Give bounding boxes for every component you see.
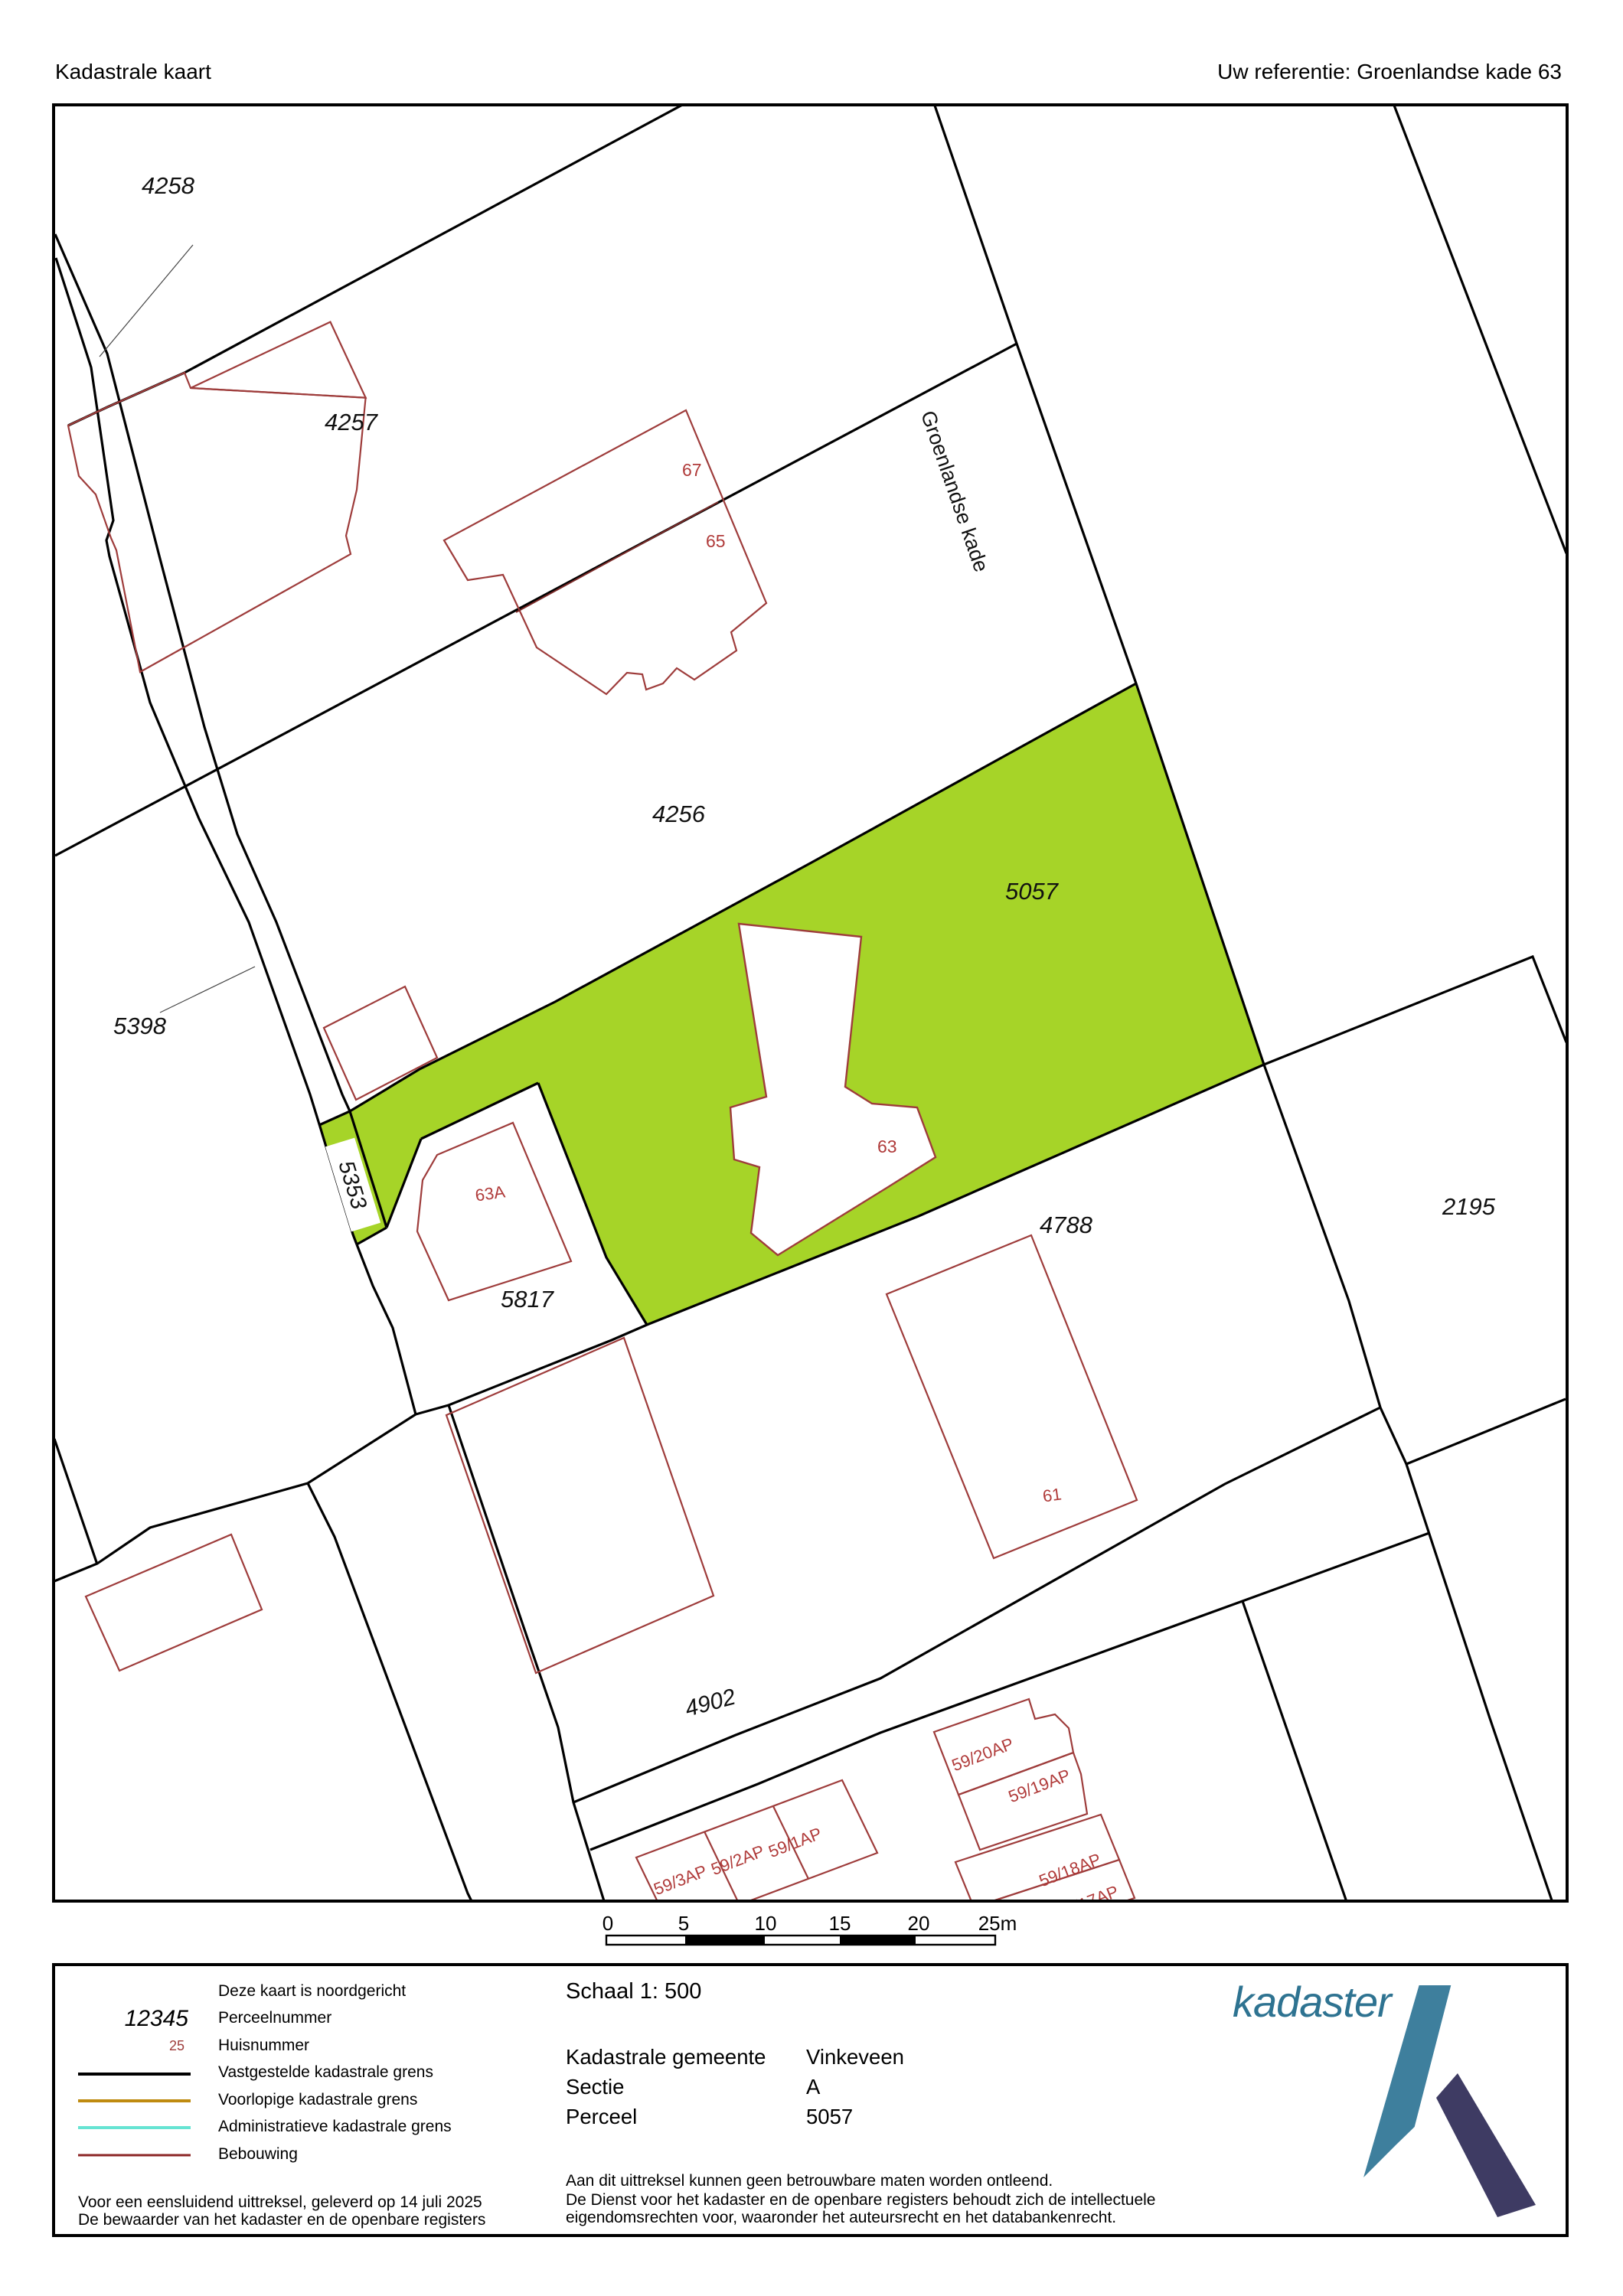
svg-text:Perceelnummer: Perceelnummer xyxy=(218,2009,331,2027)
svg-text:4257: 4257 xyxy=(325,409,379,435)
svg-text:Sectie: Sectie xyxy=(566,2075,624,2099)
svg-text:20: 20 xyxy=(908,1912,930,1935)
svg-text:67: 67 xyxy=(682,460,702,480)
svg-text:eigendomsrechten voor, waarond: eigendomsrechten voor, waaronder het aut… xyxy=(566,2209,1116,2226)
svg-text:De Dienst voor het kadaster en: De Dienst voor het kadaster en de openba… xyxy=(566,2191,1155,2209)
svg-text:Voor een eensluidend uittrekse: Voor een eensluidend uittreksel, gelever… xyxy=(78,2193,482,2211)
svg-text:Kadastrale gemeente: Kadastrale gemeente xyxy=(566,2045,766,2069)
svg-text:5398: 5398 xyxy=(113,1013,167,1039)
svg-text:4258: 4258 xyxy=(142,172,195,199)
svg-text:25: 25 xyxy=(169,2038,185,2053)
svg-text:5057: 5057 xyxy=(806,2105,853,2128)
svg-text:Vinkeveen: Vinkeveen xyxy=(806,2045,904,2069)
svg-text:5817: 5817 xyxy=(501,1286,555,1313)
svg-text:Vastgestelde kadastrale grens: Vastgestelde kadastrale grens xyxy=(218,2063,433,2081)
svg-text:5057: 5057 xyxy=(1005,878,1060,905)
svg-text:Administratieve kadastrale gre: Administratieve kadastrale grens xyxy=(218,2118,452,2135)
svg-text:Voorlopige kadastrale grens: Voorlopige kadastrale grens xyxy=(218,2091,417,2108)
svg-text:Kadastrale kaart: Kadastrale kaart xyxy=(55,60,211,83)
svg-text:2195: 2195 xyxy=(1442,1193,1496,1220)
svg-text:Huisnummer: Huisnummer xyxy=(218,2037,309,2054)
svg-text:Uw referentie: Groenlandse kad: Uw referentie: Groenlandse kade 63 xyxy=(1217,60,1562,83)
svg-text:Deze kaart is noordgericht: Deze kaart is noordgericht xyxy=(218,1982,406,2000)
svg-text:65: 65 xyxy=(706,531,726,551)
svg-text:4256: 4256 xyxy=(652,801,706,827)
svg-text:De bewaarder van het kadaster: De bewaarder van het kadaster en de open… xyxy=(78,2211,485,2229)
svg-text:4788: 4788 xyxy=(1040,1212,1093,1238)
svg-text:12345: 12345 xyxy=(125,2006,189,2031)
svg-text:Bebouwing: Bebouwing xyxy=(218,2145,298,2163)
svg-text:A: A xyxy=(806,2075,821,2099)
svg-text:kadaster: kadaster xyxy=(1233,1978,1393,2026)
svg-text:25m: 25m xyxy=(978,1912,1017,1935)
svg-text:15: 15 xyxy=(829,1912,851,1935)
svg-text:10: 10 xyxy=(755,1912,777,1935)
svg-text:0: 0 xyxy=(603,1912,613,1935)
svg-text:63: 63 xyxy=(877,1137,897,1156)
svg-text:5: 5 xyxy=(678,1912,689,1935)
svg-text:Aan dit uittreksel kunnen geen: Aan dit uittreksel kunnen geen betrouwba… xyxy=(566,2172,1053,2190)
svg-text:Schaal 1: 500: Schaal 1: 500 xyxy=(566,1979,701,2004)
svg-text:Perceel: Perceel xyxy=(566,2105,637,2128)
svg-text:61: 61 xyxy=(1041,1484,1063,1505)
